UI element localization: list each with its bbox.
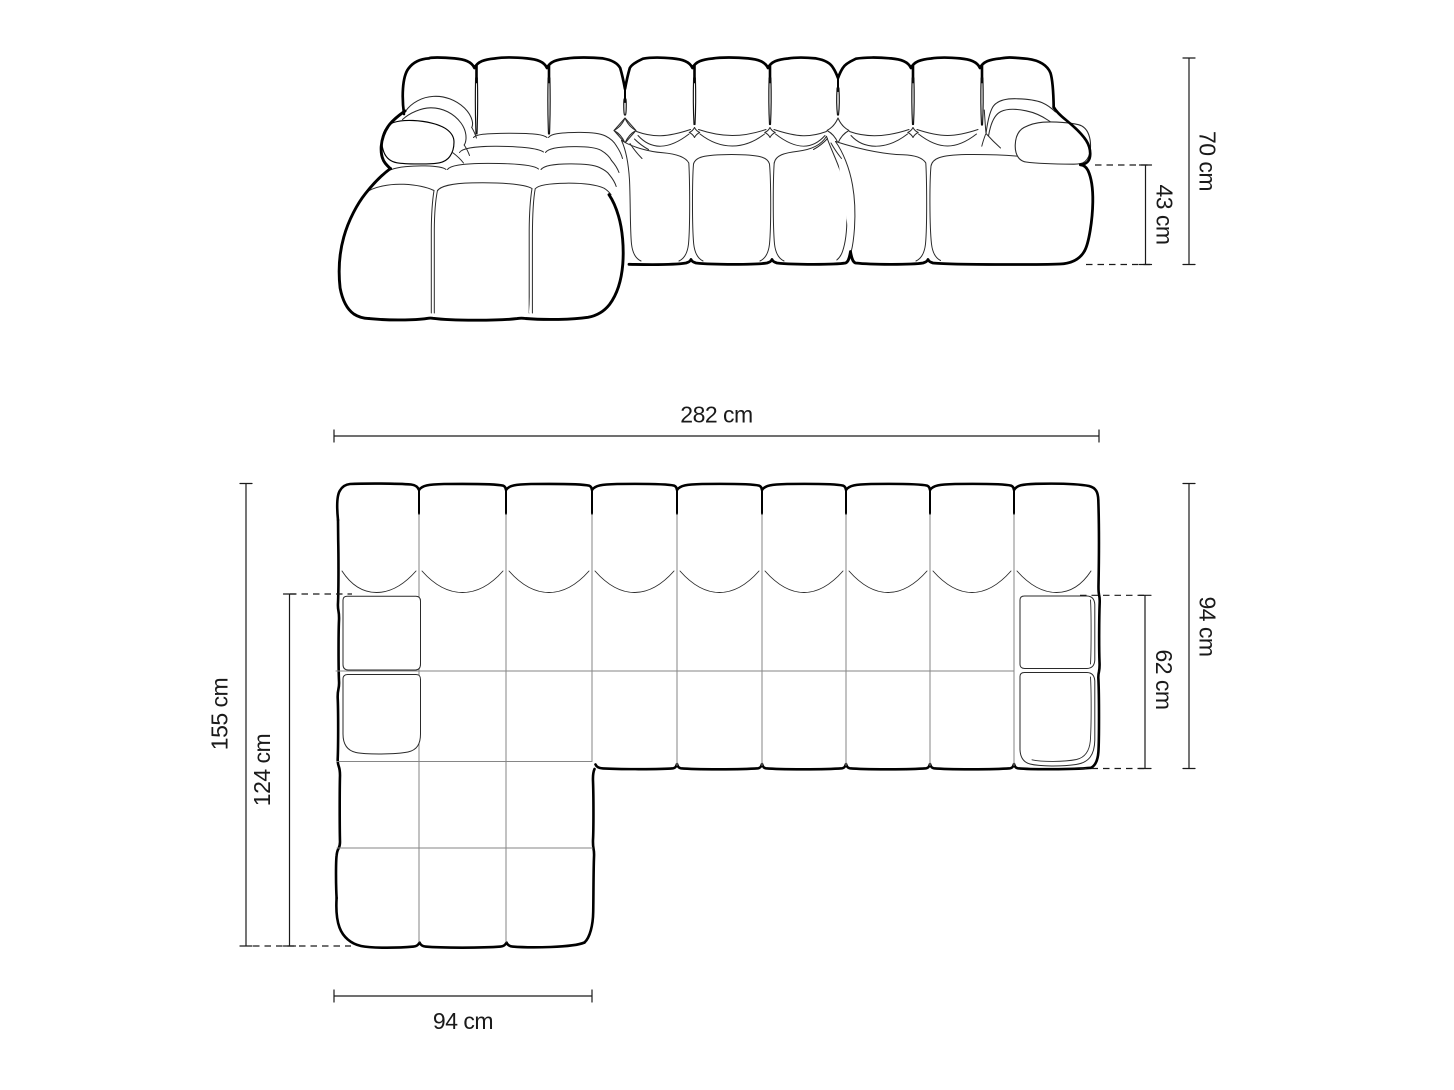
svg-text:43 cm: 43 cm <box>1152 184 1178 244</box>
svg-text:124 cm: 124 cm <box>249 734 275 806</box>
svg-text:62 cm: 62 cm <box>1151 649 1177 709</box>
svg-text:155 cm: 155 cm <box>207 678 233 750</box>
svg-text:282 cm: 282 cm <box>680 402 752 428</box>
svg-text:94 cm: 94 cm <box>433 1008 493 1034</box>
svg-text:70 cm: 70 cm <box>1195 131 1221 191</box>
svg-text:94 cm: 94 cm <box>1195 596 1221 656</box>
